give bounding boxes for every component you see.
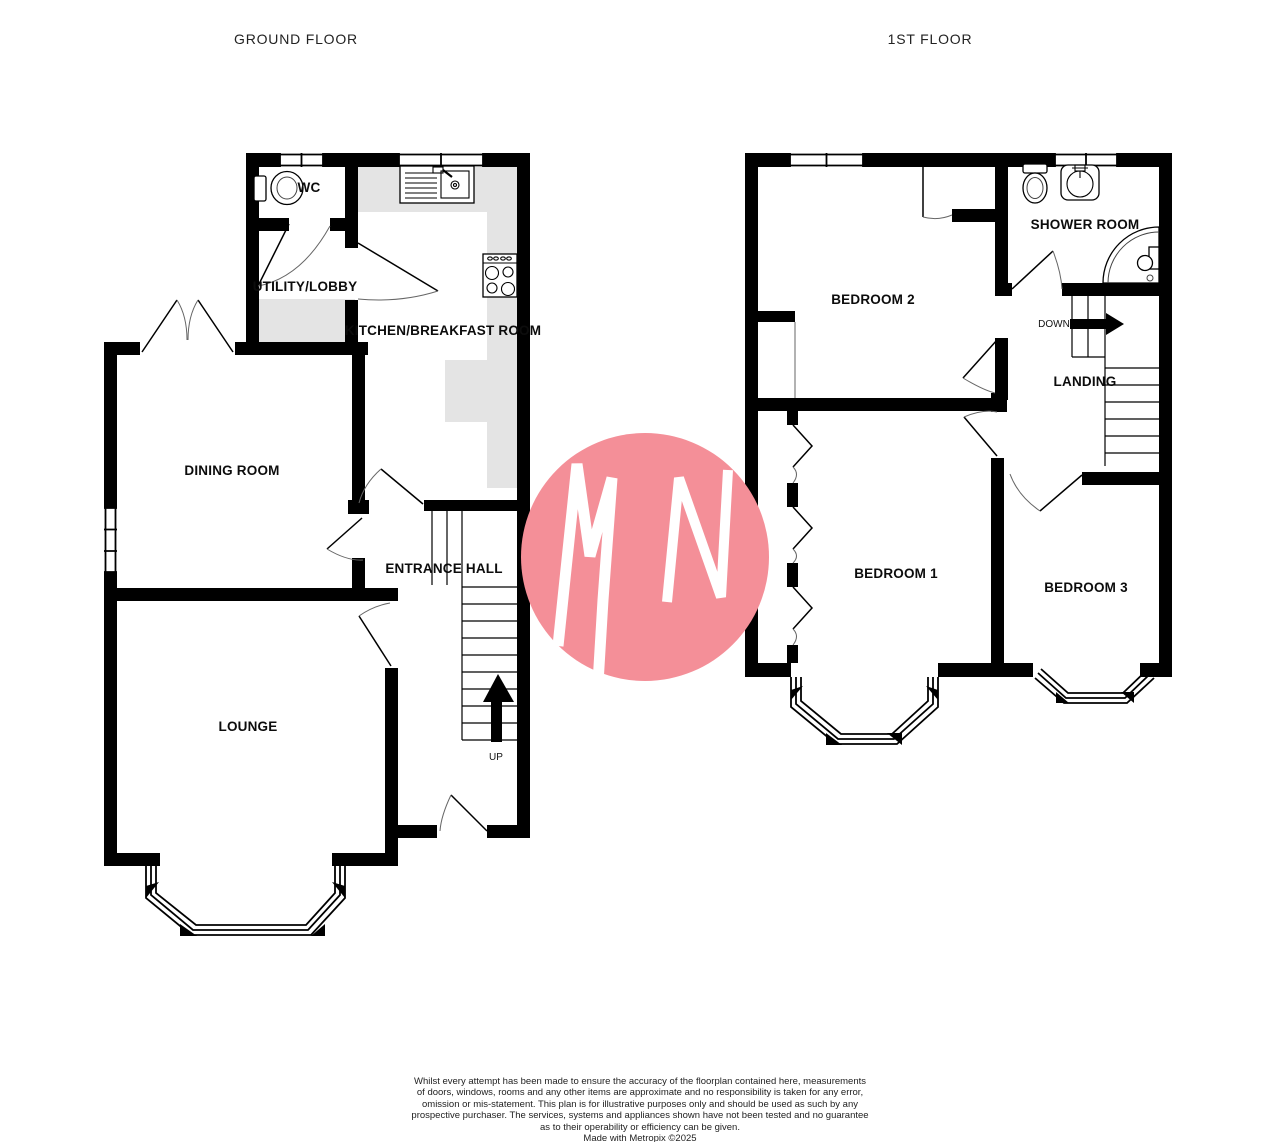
bedroom3-label: BEDROOM 3 bbox=[1044, 580, 1128, 595]
disclaimer-line: of doors, windows, rooms and any other i… bbox=[0, 1087, 1280, 1098]
lounge-bay-window bbox=[146, 866, 345, 936]
sink-icon bbox=[400, 166, 474, 203]
kitchen-window bbox=[399, 153, 483, 167]
ground-stairs bbox=[432, 511, 517, 742]
down-label: DOWN bbox=[1038, 319, 1070, 330]
utility-kitchen-door bbox=[358, 243, 438, 300]
bedroom1-label: BEDROOM 1 bbox=[854, 566, 938, 581]
utility-label: UTILITY/LOBBY bbox=[253, 279, 358, 294]
disclaimer: Whilst every attempt has been made to en… bbox=[0, 1076, 1280, 1142]
bedroom2-stair-bulkhead-door bbox=[923, 167, 952, 219]
front-door bbox=[440, 795, 487, 831]
lounge-door bbox=[359, 603, 391, 666]
floorplan-drawing: GROUND FLOOR WC UTILITY/LOBBY KITCHEN/BR… bbox=[0, 0, 1280, 1070]
wc-window bbox=[280, 153, 323, 167]
bedroom3-bay-window bbox=[1035, 669, 1154, 703]
corner-shower-icon bbox=[1103, 227, 1159, 283]
up-label: UP bbox=[489, 752, 503, 763]
dining-label: DINING ROOM bbox=[184, 463, 279, 478]
metropix-credit: Made with Metropix ©2025 bbox=[0, 1133, 1280, 1142]
disclaimer-line: as to their operability or efficiency ca… bbox=[0, 1122, 1280, 1133]
wc-label: WC bbox=[298, 180, 321, 195]
disclaimer-line: prospective purchaser. The services, sys… bbox=[0, 1110, 1280, 1121]
wc-door bbox=[258, 224, 330, 286]
landing-label: LANDING bbox=[1054, 374, 1117, 389]
toilet-icon bbox=[254, 172, 303, 205]
bedroom3-door bbox=[1010, 474, 1082, 511]
basin-icon bbox=[1061, 165, 1099, 200]
watermark-logo bbox=[521, 433, 769, 700]
kitchen-label: KITCHEN/BREAKFAST ROOM bbox=[345, 323, 541, 338]
lounge-label: LOUNGE bbox=[219, 719, 278, 734]
toilet-icon-first bbox=[1023, 164, 1047, 203]
first-floor-title: 1ST FLOOR bbox=[888, 31, 973, 47]
bedroom2-label: BEDROOM 2 bbox=[831, 292, 915, 307]
bedroom2-window bbox=[790, 153, 863, 167]
kitchen-hall-door bbox=[359, 469, 423, 504]
floorplan-page: GROUND FLOOR WC UTILITY/LOBBY KITCHEN/BR… bbox=[0, 0, 1280, 1142]
bedroom2-door bbox=[963, 340, 997, 393]
shower-room-door bbox=[1012, 251, 1062, 289]
bedroom1-wardrobe-doors bbox=[787, 322, 812, 663]
ground-floor-plan: GROUND FLOOR WC UTILITY/LOBBY KITCHEN/BR… bbox=[104, 31, 541, 936]
ground-walls bbox=[104, 153, 530, 866]
down-arrow-icon bbox=[1070, 313, 1124, 335]
dining-hall-door bbox=[327, 518, 363, 560]
dining-french-doors bbox=[142, 300, 233, 352]
ground-floor-title: GROUND FLOOR bbox=[234, 31, 358, 47]
hob-icon bbox=[483, 254, 517, 297]
disclaimer-line: omission or mis-statement. This plan is … bbox=[0, 1099, 1280, 1110]
first-floor-plan: 1ST FLOOR BEDROOM 2 SHOWER ROOM LANDING … bbox=[745, 31, 1172, 745]
bedroom1-bay-window bbox=[791, 677, 938, 745]
hall-label: ENTRANCE HALL bbox=[385, 561, 502, 576]
disclaimer-line: Whilst every attempt has been made to en… bbox=[0, 1076, 1280, 1087]
dining-window bbox=[104, 508, 117, 572]
shower-room-label: SHOWER ROOM bbox=[1031, 217, 1140, 232]
up-arrow-icon bbox=[483, 674, 514, 742]
bedroom1-door bbox=[964, 411, 997, 456]
